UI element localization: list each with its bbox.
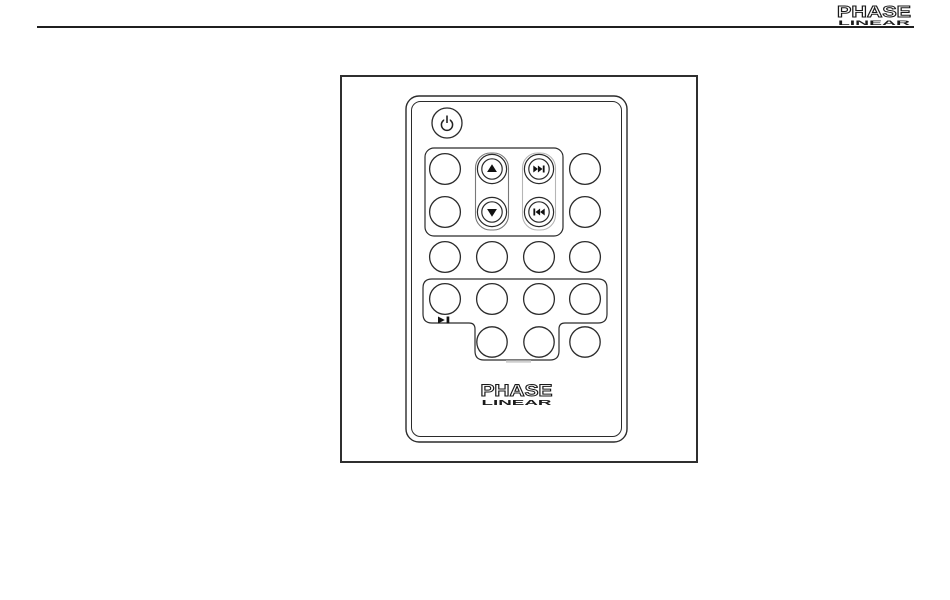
page-logo: PHASE LINEAR — [834, 4, 914, 26]
manual-page: PHASE LINEAR — [0, 0, 950, 600]
remote-button — [524, 327, 554, 357]
remote-button — [570, 284, 601, 315]
header-rule — [37, 26, 914, 28]
prev-track-button — [524, 197, 553, 226]
remote-button — [430, 242, 461, 273]
remote-button — [524, 242, 555, 273]
remote-button — [477, 242, 508, 273]
remote-logo-phase: PHASE — [481, 381, 553, 400]
remote-button — [430, 197, 461, 228]
remote-button — [430, 154, 461, 185]
figure-frame: PHASE LINEAR — [340, 75, 698, 463]
up-button — [477, 154, 506, 183]
remote-button — [570, 197, 601, 228]
remote-button — [570, 242, 601, 273]
remote-button — [477, 327, 507, 357]
remote-button — [477, 284, 508, 315]
play-pause-button — [430, 284, 461, 315]
next-track-button — [524, 154, 553, 183]
down-button — [477, 197, 506, 226]
page-logo-phase: PHASE — [837, 4, 911, 21]
remote-illustration: PHASE LINEAR — [405, 95, 628, 443]
remote-button — [570, 327, 600, 357]
remote-button — [570, 154, 601, 185]
remote-button — [524, 284, 555, 315]
remote-logo-linear: LINEAR — [482, 400, 552, 407]
power-button — [432, 108, 462, 138]
